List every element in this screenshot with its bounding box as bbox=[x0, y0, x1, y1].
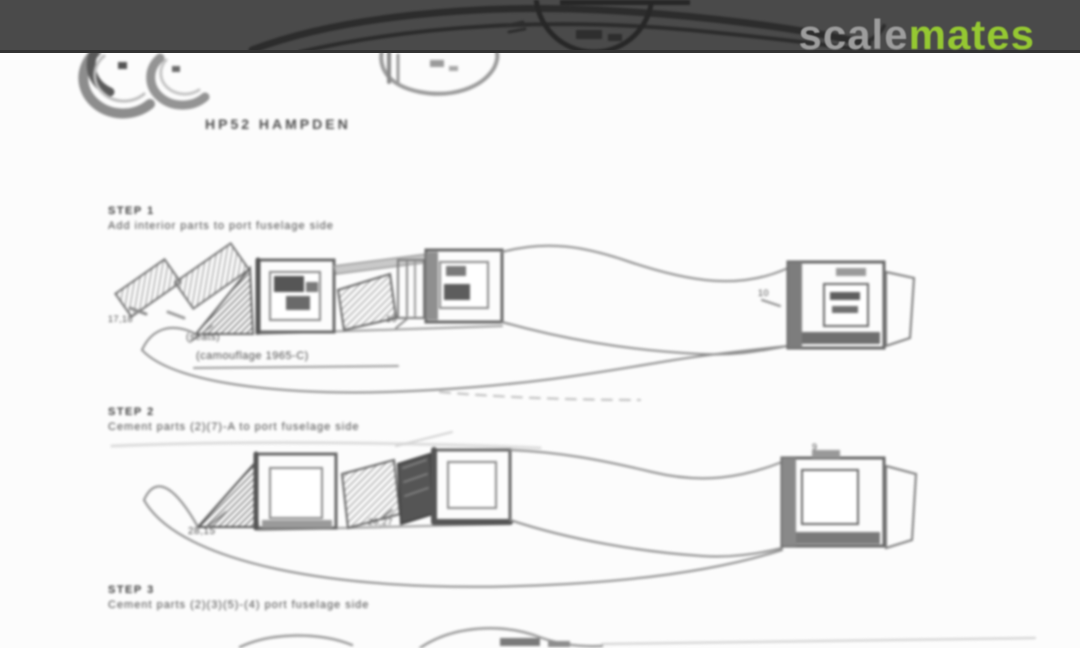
step3-instruction: Cement parts (2)(3)(5)-(4) port fuselage… bbox=[108, 599, 369, 611]
step2-tail-label: 9 bbox=[812, 442, 818, 452]
step1-title: STEP 1 bbox=[108, 205, 155, 217]
step2-instruction: Cement parts (2)(7)-A to port fuselage s… bbox=[108, 421, 359, 433]
step1-note-line1: (seats) bbox=[186, 332, 220, 343]
step2-nose-label: 28,15 bbox=[188, 526, 216, 537]
step2-title: STEP 2 bbox=[108, 406, 155, 418]
step3-title: STEP 3 bbox=[108, 584, 155, 596]
step1-figure bbox=[115, 243, 914, 400]
step1-mid-label: 16 bbox=[386, 314, 397, 324]
step2-figure bbox=[112, 432, 916, 587]
step1-instruction: Add interior parts to port fuselage side bbox=[108, 220, 334, 232]
step3-partial-figure bbox=[240, 628, 1035, 648]
scalemates-logo-mates: mates bbox=[909, 11, 1035, 58]
top-partial-drawing bbox=[83, 50, 497, 113]
scanned-page: HP52 HAMPDEN STEP 1 Add interior parts t… bbox=[0, 0, 1080, 648]
step2-mid-label: 26,27 bbox=[368, 517, 393, 527]
scalemates-logo-scale: scale bbox=[798, 11, 908, 58]
step1-note-line2: (camouflage 1965-C) bbox=[196, 350, 309, 362]
sheet-caption: HP52 HAMPDEN bbox=[205, 116, 351, 132]
step1-part-label: 17,18 bbox=[108, 314, 133, 324]
scalemates-logo: scalemates bbox=[798, 14, 1035, 56]
instruction-sheet-line-art bbox=[0, 0, 1080, 648]
step1-tail-label: 10 bbox=[758, 288, 769, 298]
screenshot-root: HP52 HAMPDEN STEP 1 Add interior parts t… bbox=[0, 0, 1080, 648]
